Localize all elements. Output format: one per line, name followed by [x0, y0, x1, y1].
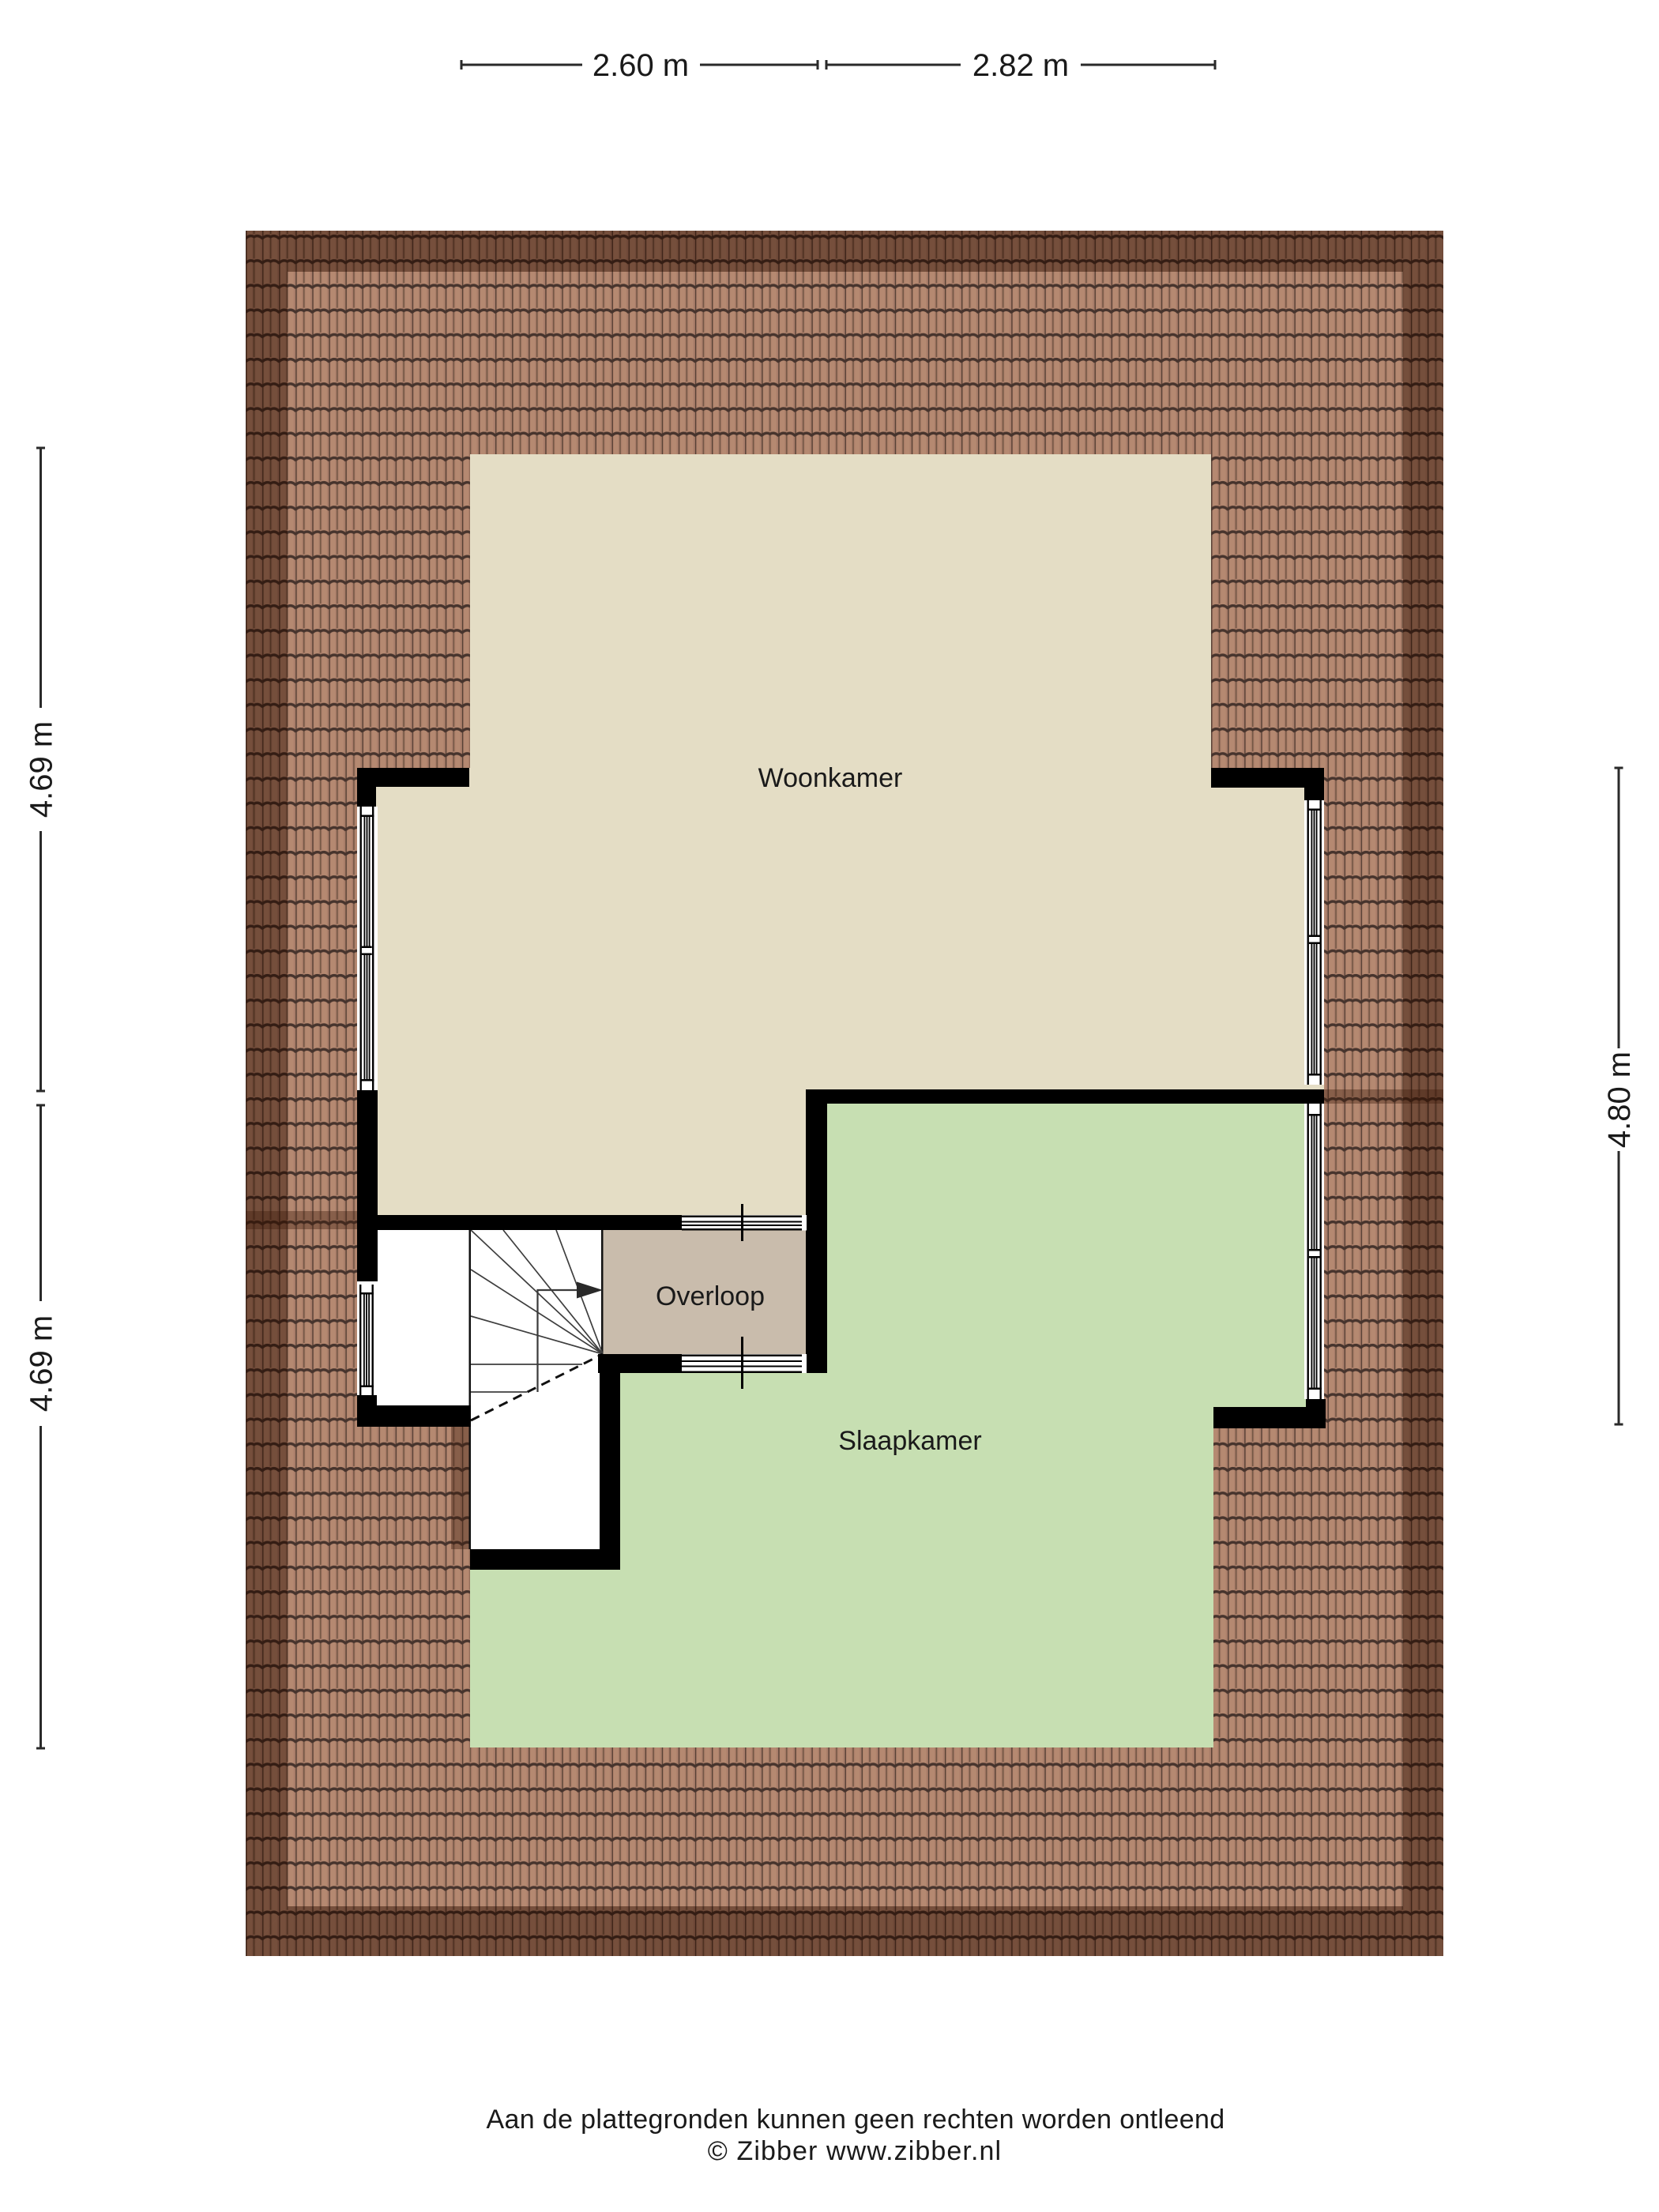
svg-text:4.80 m: 4.80 m	[1602, 1051, 1637, 1148]
svg-text:Woonkamer: Woonkamer	[758, 763, 903, 793]
svg-text:© Zibber www.zibber.nl: © Zibber www.zibber.nl	[708, 2136, 1002, 2166]
svg-text:4.69 m: 4.69 m	[24, 721, 59, 818]
svg-text:2.82 m: 2.82 m	[972, 48, 1069, 83]
svg-text:2.60 m: 2.60 m	[592, 48, 689, 83]
svg-text:Overloop: Overloop	[656, 1281, 765, 1311]
svg-text:Slaapkamer: Slaapkamer	[838, 1426, 981, 1456]
svg-text:4.69 m: 4.69 m	[24, 1315, 59, 1412]
svg-text:Aan de plattegronden kunnen ge: Aan de plattegronden kunnen geen rechten…	[486, 2105, 1224, 2135]
